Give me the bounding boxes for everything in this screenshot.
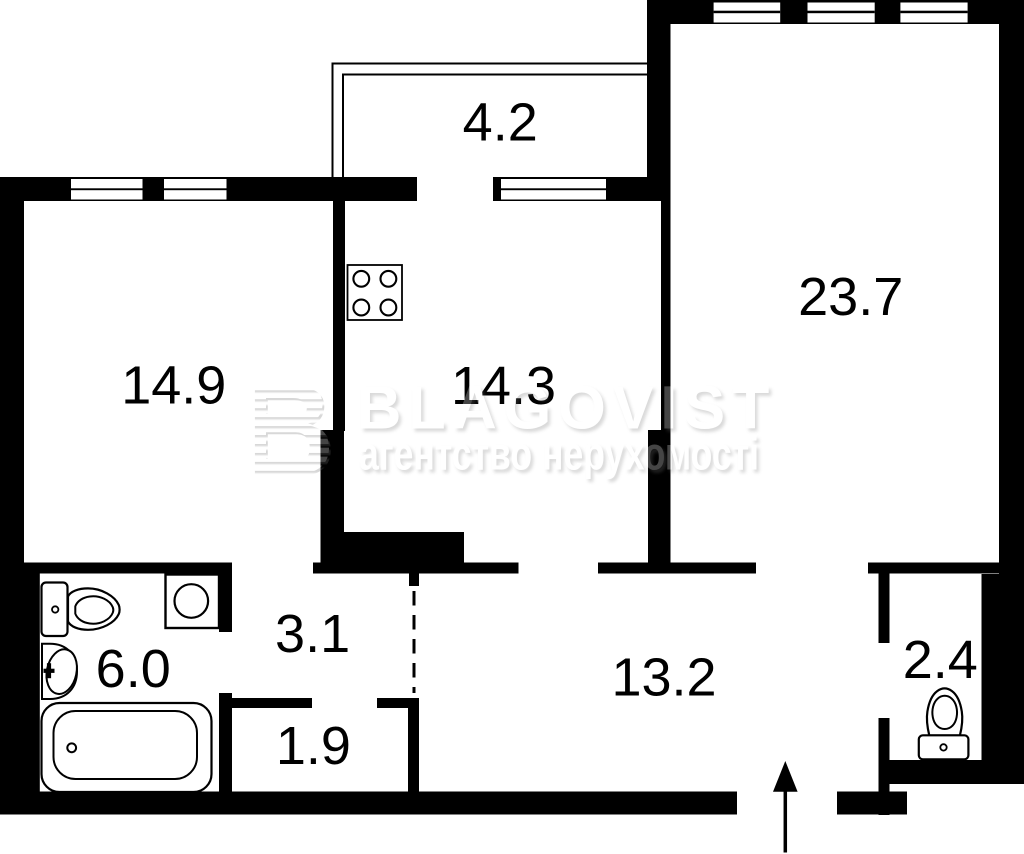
svg-text:23.7: 23.7 — [798, 267, 903, 327]
svg-text:13.2: 13.2 — [611, 648, 716, 708]
svg-text:3.1: 3.1 — [275, 604, 350, 664]
svg-text:6.0: 6.0 — [96, 639, 171, 699]
svg-text:1.9: 1.9 — [276, 716, 351, 776]
svg-text:4.2: 4.2 — [463, 92, 538, 152]
svg-text:2.4: 2.4 — [903, 630, 978, 690]
svg-text:14.9: 14.9 — [121, 356, 226, 416]
svg-text:агентство нерухомості: агентство нерухомості — [359, 428, 759, 480]
